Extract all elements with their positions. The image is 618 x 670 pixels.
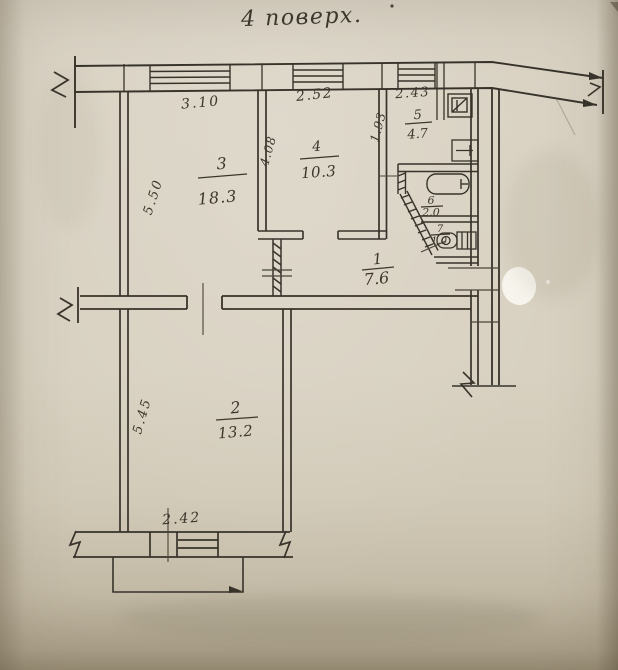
right-wall-break-end xyxy=(452,372,516,397)
dim-room3-depth: 5.50 xyxy=(141,177,167,217)
dim-room4-depth: 4.08 xyxy=(257,134,279,168)
middle-wall xyxy=(78,287,478,323)
break-mark-bottom-left xyxy=(70,531,80,558)
hatched-partition-vertical xyxy=(398,172,406,195)
plan-title: 4 поверх. xyxy=(240,3,363,32)
room-4-label: 4 10.3 xyxy=(300,139,339,183)
wall-arrow-bottom xyxy=(583,99,597,107)
room-1-label: 1 7.6 xyxy=(362,250,394,290)
partition-room3-corridor xyxy=(273,239,281,296)
break-mark-top-left xyxy=(52,72,68,97)
white-out-blob xyxy=(500,265,539,307)
stair-shaft-inner-wall xyxy=(471,89,478,385)
room-2-area: 13.2 xyxy=(217,422,254,443)
floor-plan-drawing: 4 поверх. xyxy=(0,0,618,670)
break-mark-bottom-right xyxy=(280,531,290,558)
room-3-label: 3 18.3 xyxy=(197,154,247,209)
room-4-number: 4 xyxy=(311,139,322,156)
window-room3 xyxy=(150,64,230,91)
dim-room3-width: 3.10 xyxy=(180,93,220,112)
room-7-area: 1.0 xyxy=(431,236,448,247)
dim-room5-width: 2.43 xyxy=(394,85,431,102)
room-5-number: 5 xyxy=(413,108,422,124)
dim-room2-depth: 5.45 xyxy=(130,396,155,436)
wall-arrow-top xyxy=(589,72,603,80)
room-5-label: 5 4.7 xyxy=(405,108,432,143)
white-speck xyxy=(546,280,550,284)
break-mark-top-right xyxy=(588,83,600,96)
room2-side-walls xyxy=(283,309,291,532)
room-3-area: 18.3 xyxy=(197,186,238,208)
room-6-area: 2.0 xyxy=(421,206,440,219)
room-3-number: 3 xyxy=(216,154,227,174)
corner-mark xyxy=(610,2,618,12)
vent-shaft-icon xyxy=(448,94,472,117)
faint-pencil-mark xyxy=(556,98,575,135)
exterior-top-wall xyxy=(74,56,603,128)
sink-icon xyxy=(452,140,478,161)
room-6-label: 6 2.0 xyxy=(421,194,443,219)
wall-room4-room5 xyxy=(379,89,387,239)
room-5-area: 4.7 xyxy=(406,126,429,143)
wall-room4-corridor xyxy=(258,231,386,239)
room-1-number: 1 xyxy=(372,250,383,269)
room-7-number: 7 xyxy=(437,224,444,235)
right-exterior-wall xyxy=(492,89,499,386)
ink-speck xyxy=(390,4,393,7)
room-1-area: 7.6 xyxy=(363,268,390,289)
bathtub-icon xyxy=(427,174,469,194)
room-2-number: 2 xyxy=(229,398,242,418)
room-7-label: 7 1.0 xyxy=(431,224,450,247)
break-mark-middle-left xyxy=(58,298,72,321)
left-exterior-wall xyxy=(120,92,128,532)
scanned-floor-plan-page: 4 поверх. xyxy=(0,0,618,670)
window-room4 xyxy=(293,64,343,90)
wall-room5-room6 xyxy=(398,164,478,172)
balcony-outline xyxy=(113,557,243,592)
room-4-area: 10.3 xyxy=(300,162,337,182)
dim-room4-width: 2.52 xyxy=(294,85,334,105)
dim-balcony-wall-width: 2.42 xyxy=(161,510,202,529)
room-2-label: 2 13.2 xyxy=(216,398,258,443)
room2-bottom-wall xyxy=(73,532,293,557)
